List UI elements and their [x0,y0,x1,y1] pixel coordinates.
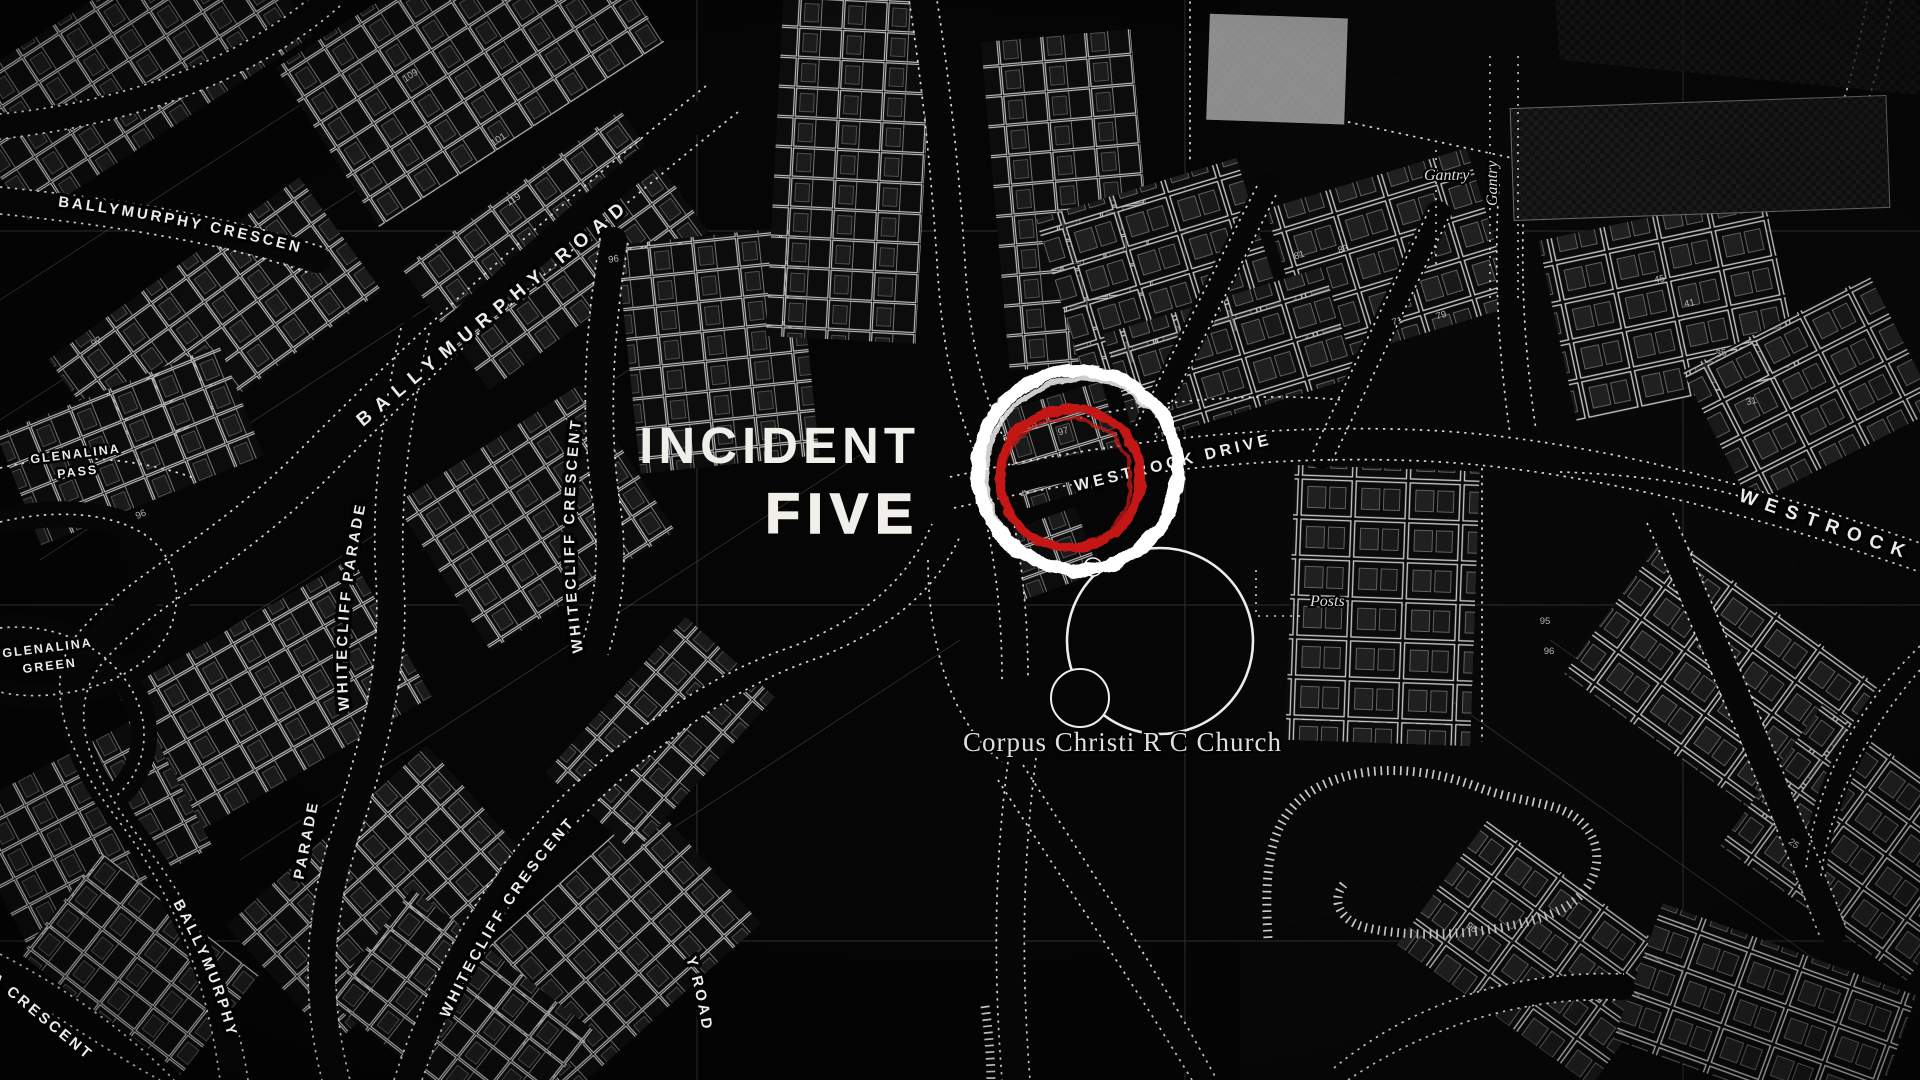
gantry-label: Gantry [1424,167,1470,184]
incident-title-line2: FIVE [639,486,920,543]
vignette [0,0,1920,1080]
incident-title-line1: INCIDENT [639,420,920,471]
church-label: Corpus Christi R C Church [963,727,1282,757]
street-map: 109 101 119 96 92 96 81 83 71 79 101 97 … [0,0,1920,1080]
gantry-label-vertical: Gantry [1484,160,1501,206]
map-stage: 109 101 119 96 92 96 81 83 71 79 101 97 … [0,0,1920,1080]
posts-label: Posts [1309,593,1345,610]
incident-title: INCIDENT FIVE [639,420,920,543]
